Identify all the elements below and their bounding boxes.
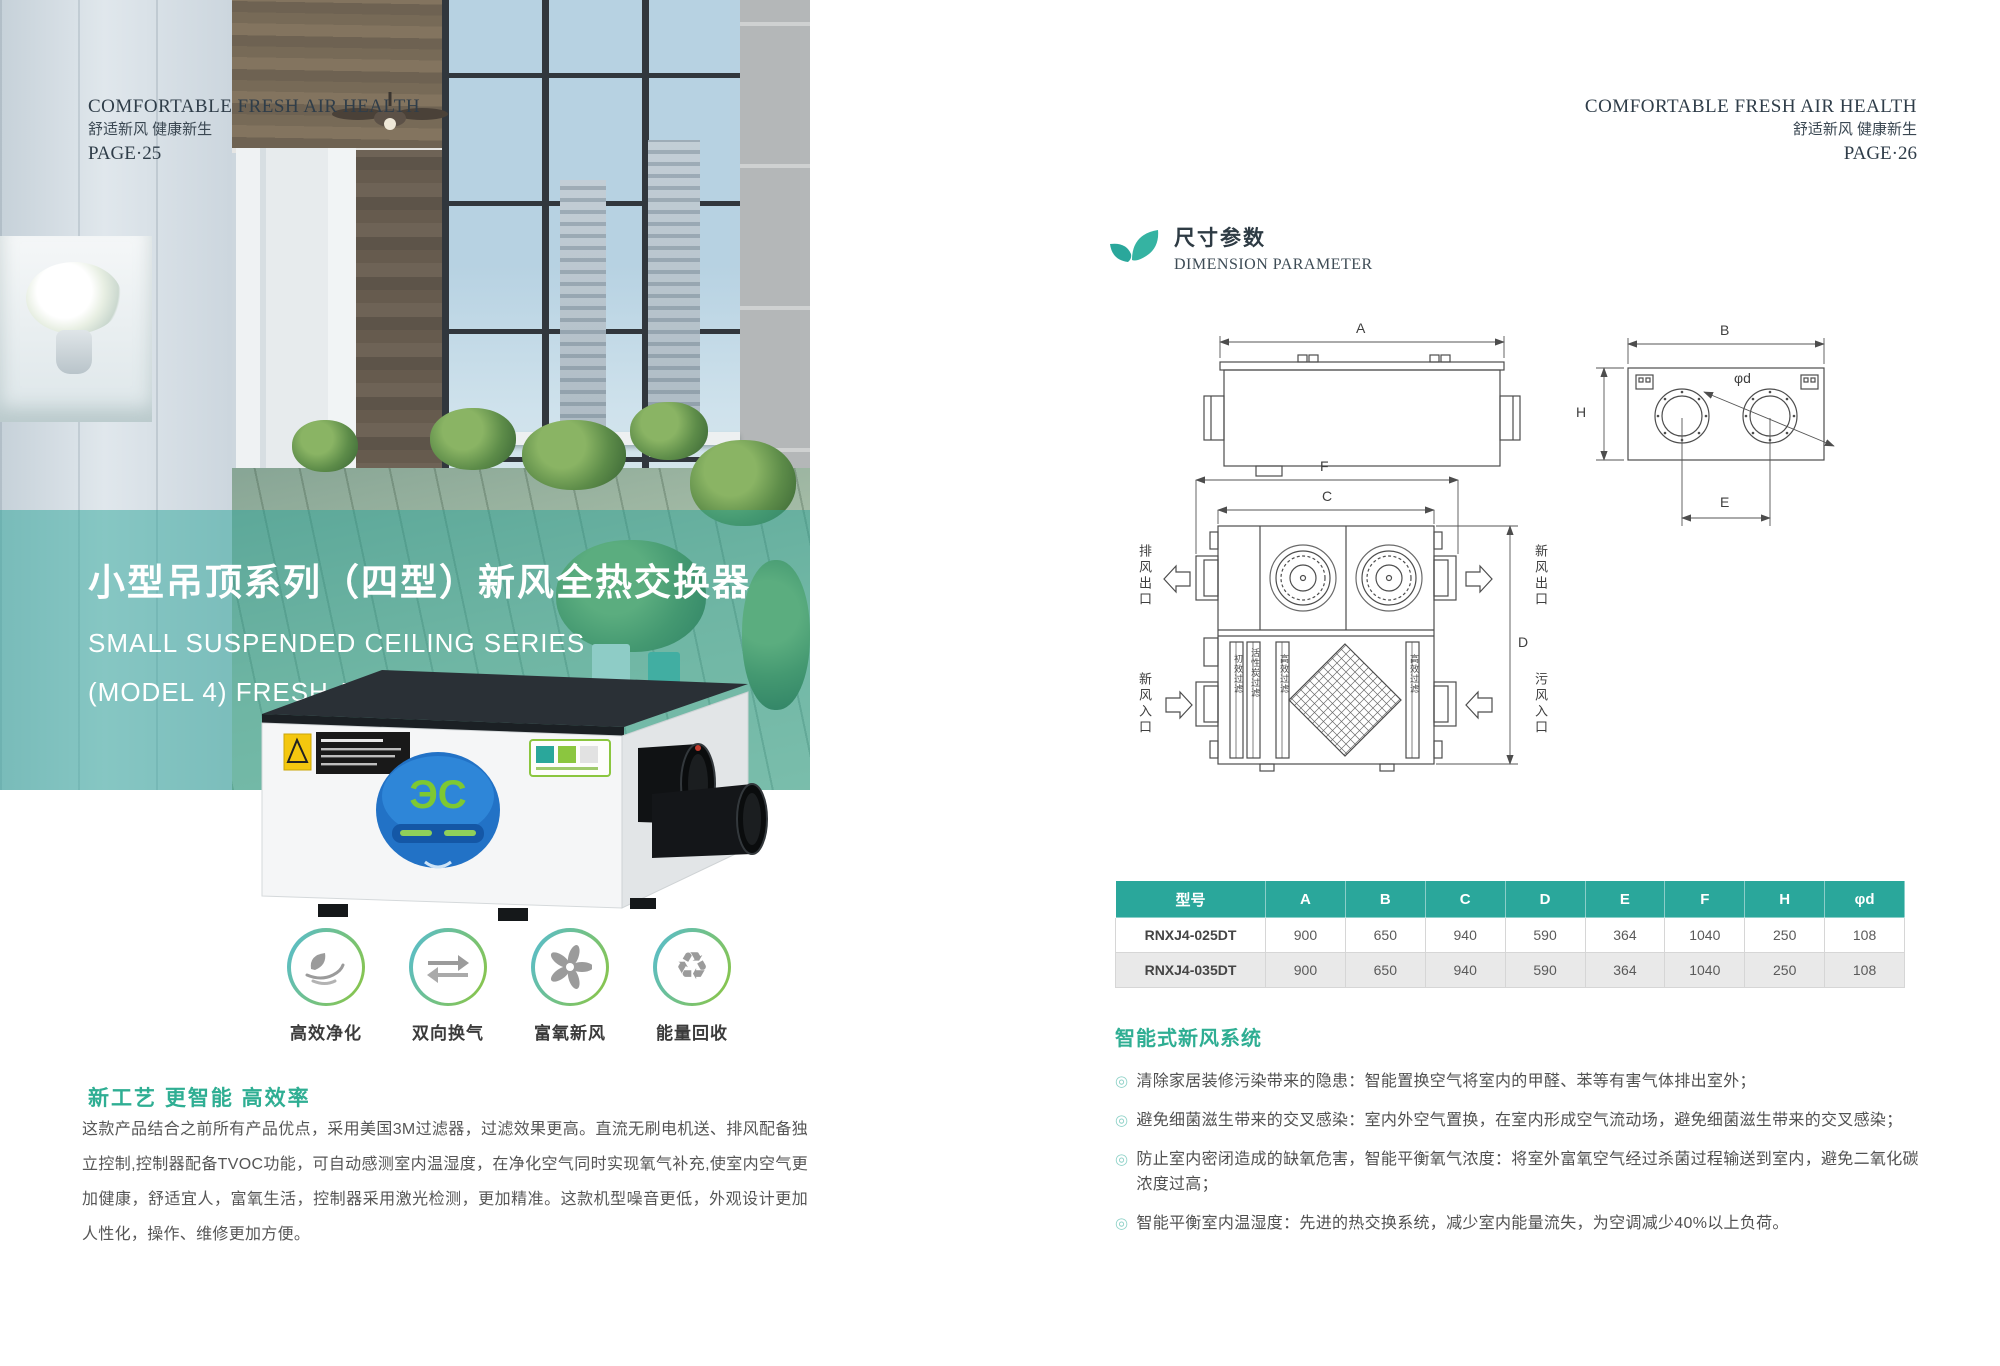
- bullet-text: 避免细菌滋生带来的交叉感染：室内外空气置换，在室内形成空气流动场，避免细菌滋生带…: [1136, 1108, 1902, 1133]
- smart-system-section: 智能式新风系统 ◎ 清除家居装修污染带来的隐患：智能置换空气将室内的甲醛、苯等有…: [1115, 1022, 1920, 1250]
- header-tagline-cn: 舒适新风 健康新生: [1585, 121, 1917, 140]
- photo-plant: [430, 408, 516, 470]
- col-header: B: [1345, 881, 1425, 918]
- feature-label: 高效净化: [276, 1019, 376, 1044]
- table-row: RNXJ4-035DT 900 650 940 590 364 1040 250…: [1116, 953, 1905, 988]
- table-row: RNXJ4-025DT 900 650 940 590 364 1040 250…: [1116, 918, 1905, 953]
- dim-label-phi-d: φd: [1734, 370, 1751, 386]
- label-exhaust-outlet: 排风出口: [1136, 544, 1152, 608]
- brochure-spread: 小型吊顶系列（四型）新风全热交换器 SMALL SUSPENDED CEILIN…: [0, 0, 2000, 1366]
- bullet-text: 防止室内密闭造成的缺氧危害，智能平衡氧气浓度：将室外富氧空气经过杀菌过程输送到室…: [1136, 1147, 1920, 1197]
- bullet-text: 清除家居装修污染带来的隐患：智能置换空气将室内的甲醛、苯等有害气体排出室外；: [1136, 1069, 1755, 1094]
- label-filter-hepa-2: 高效过滤: [1407, 654, 1420, 694]
- cell-value: 590: [1505, 918, 1585, 953]
- dim-label-H: H: [1576, 404, 1586, 420]
- recycle-icon: ♻: [653, 928, 731, 1006]
- bullet-icon: ◎: [1115, 1108, 1128, 1133]
- dimension-drawing-linework: [1130, 258, 1920, 833]
- label-filter-primary: 初效过滤: [1231, 654, 1244, 694]
- product-unit-image: ЭC: [200, 552, 780, 967]
- col-header: φd: [1825, 881, 1905, 918]
- cell-value: 900: [1266, 953, 1346, 988]
- dimension-table: 型号 A B C D E F H φd RNXJ4-025DT 900 650 …: [1115, 880, 1905, 988]
- bullet-icon: ◎: [1115, 1211, 1128, 1236]
- intro-heading: 新工艺 更智能 高效率: [88, 1082, 311, 1112]
- feature-fresh-air: 富氧新风: [520, 928, 620, 1044]
- photo-city-tower: [648, 140, 700, 430]
- dim-label-F: F: [1320, 458, 1329, 474]
- feature-label: 双向换气: [398, 1019, 498, 1044]
- list-item: ◎ 防止室内密闭造成的缺氧危害，智能平衡氧气浓度：将室外富氧空气经过杀菌过程输送…: [1115, 1147, 1920, 1197]
- cell-value: 1040: [1665, 918, 1745, 953]
- feature-energy: ♻ 能量回收: [642, 928, 742, 1044]
- col-header: D: [1505, 881, 1585, 918]
- cell-value: 1040: [1665, 953, 1745, 988]
- feature-purify: 高效净化: [276, 928, 376, 1044]
- list-item: ◎ 避免细菌滋生带来的交叉感染：室内外空气置换，在室内形成空气流动场，避免细菌滋…: [1115, 1108, 1920, 1133]
- fan-icon: [531, 928, 609, 1006]
- bullet-icon: ◎: [1115, 1069, 1128, 1094]
- cell-value: 650: [1345, 918, 1425, 953]
- col-header: E: [1585, 881, 1665, 918]
- cell-value: 250: [1745, 918, 1825, 953]
- page-number: PAGE·26: [1585, 142, 1917, 166]
- list-item: ◎ 清除家居装修污染带来的隐患：智能置换空气将室内的甲醛、苯等有害气体排出室外；: [1115, 1069, 1920, 1094]
- dim-label-D: D: [1518, 634, 1528, 650]
- feature-label: 能量回收: [642, 1019, 742, 1044]
- col-header: C: [1425, 881, 1505, 918]
- cell-model: RNXJ4-035DT: [1116, 953, 1266, 988]
- cell-value: 250: [1745, 953, 1825, 988]
- photo-vase: [56, 330, 92, 374]
- intro-paragraph: 这款产品结合之前所有产品优点，采用美国3M过滤器，过滤效果更高。直流无刷电机送、…: [82, 1112, 808, 1252]
- cell-value: 940: [1425, 918, 1505, 953]
- bullet-text: 智能平衡室内温湿度：先进的热交换系统，减少室内能量流失，为空调减少40%以上负荷…: [1136, 1211, 1788, 1236]
- cell-value: 108: [1825, 953, 1905, 988]
- purify-icon: [287, 928, 365, 1006]
- header-tagline-cn: 舒适新风 健康新生: [88, 121, 420, 140]
- photo-plant: [522, 420, 626, 490]
- smart-heading: 智能式新风系统: [1115, 1022, 1920, 1051]
- col-header: F: [1665, 881, 1745, 918]
- photo-plant: [630, 402, 708, 460]
- dim-label-C: C: [1322, 488, 1332, 504]
- label-filter-hepa-1: 高效过滤: [1277, 654, 1290, 694]
- table-header-row: 型号 A B C D E F H φd: [1116, 881, 1905, 918]
- col-header-model: 型号: [1116, 881, 1266, 918]
- col-header: H: [1745, 881, 1825, 918]
- dim-label-A: A: [1356, 320, 1365, 336]
- section-title-cn: 尺寸参数: [1174, 222, 1373, 252]
- page-header-left: COMFORTABLE FRESH AIR HEALTH 舒适新风 健康新生 P…: [88, 95, 420, 165]
- svg-text:ЭC: ЭC: [409, 773, 466, 817]
- feature-icons-row: 高效净化 双向换气: [276, 928, 742, 1044]
- feature-two-way: 双向换气: [398, 928, 498, 1044]
- recycle-glyph: ♻: [675, 948, 709, 986]
- two-way-arrows-icon: [409, 928, 487, 1006]
- label-filter-carbon: 活性炭过滤: [1248, 648, 1261, 698]
- cell-value: 364: [1585, 918, 1665, 953]
- dim-label-B: B: [1720, 322, 1729, 338]
- col-header: A: [1266, 881, 1346, 918]
- cell-value: 108: [1825, 918, 1905, 953]
- cell-value: 590: [1505, 953, 1585, 988]
- cell-value: 900: [1266, 918, 1346, 953]
- photo-city-tower: [560, 180, 606, 430]
- cell-model: RNXJ4-025DT: [1116, 918, 1266, 953]
- label-foul-air-inlet: 污风入口: [1532, 672, 1548, 736]
- cell-value: 364: [1585, 953, 1665, 988]
- dimension-drawing: A B H φd E F C D 排风出口 新风入口 新风出口 污风入口 初效过…: [1130, 258, 1920, 833]
- page-header-right: COMFORTABLE FRESH AIR HEALTH 舒适新风 健康新生 P…: [1585, 95, 1917, 165]
- label-fresh-air-inlet: 新风入口: [1136, 672, 1152, 736]
- list-item: ◎ 智能平衡室内温湿度：先进的热交换系统，减少室内能量流失，为空调减少40%以上…: [1115, 1211, 1920, 1236]
- cell-value: 940: [1425, 953, 1505, 988]
- cell-value: 650: [1345, 953, 1425, 988]
- header-tagline-en: COMFORTABLE FRESH AIR HEALTH: [1585, 95, 1917, 119]
- label-fresh-air-outlet: 新风出口: [1532, 544, 1548, 608]
- page-number: PAGE·25: [88, 142, 420, 166]
- photo-flowers: [26, 262, 122, 334]
- photo-plant: [292, 420, 358, 472]
- header-tagline-en: COMFORTABLE FRESH AIR HEALTH: [88, 95, 420, 119]
- dim-label-E: E: [1720, 494, 1729, 510]
- feature-label: 富氧新风: [520, 1019, 620, 1044]
- bullet-icon: ◎: [1115, 1147, 1128, 1172]
